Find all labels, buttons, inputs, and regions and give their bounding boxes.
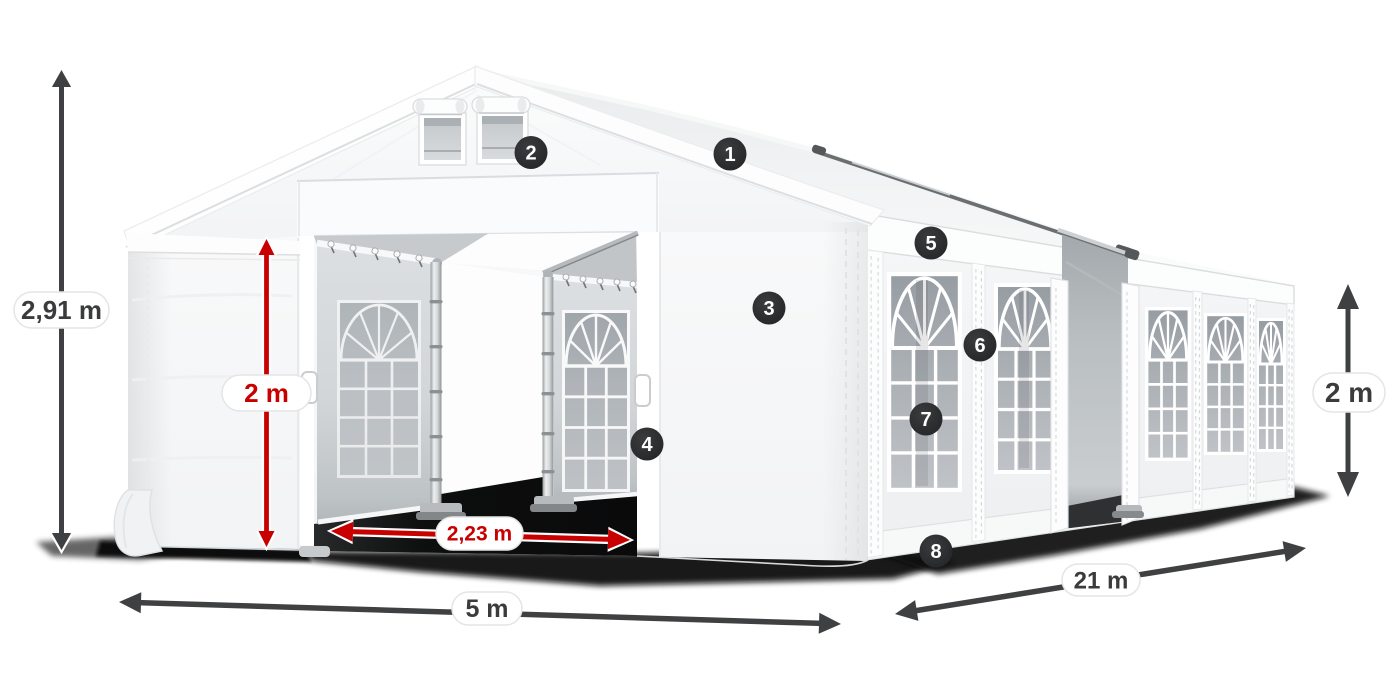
- svg-text:5: 5: [925, 233, 936, 255]
- svg-text:4: 4: [641, 434, 653, 456]
- svg-text:21 m: 21 m: [1074, 567, 1129, 594]
- svg-text:6: 6: [974, 335, 985, 357]
- svg-text:1: 1: [724, 144, 735, 166]
- svg-text:2,23 m: 2,23 m: [447, 523, 512, 546]
- svg-text:5 m: 5 m: [465, 595, 508, 623]
- svg-text:3: 3: [763, 298, 774, 320]
- svg-text:7: 7: [920, 409, 931, 431]
- svg-text:2: 2: [525, 143, 536, 165]
- svg-text:8: 8: [930, 541, 941, 563]
- svg-text:2 m: 2 m: [244, 378, 289, 408]
- svg-text:2,91 m: 2,91 m: [21, 295, 102, 325]
- svg-text:2 m: 2 m: [1325, 377, 1373, 408]
